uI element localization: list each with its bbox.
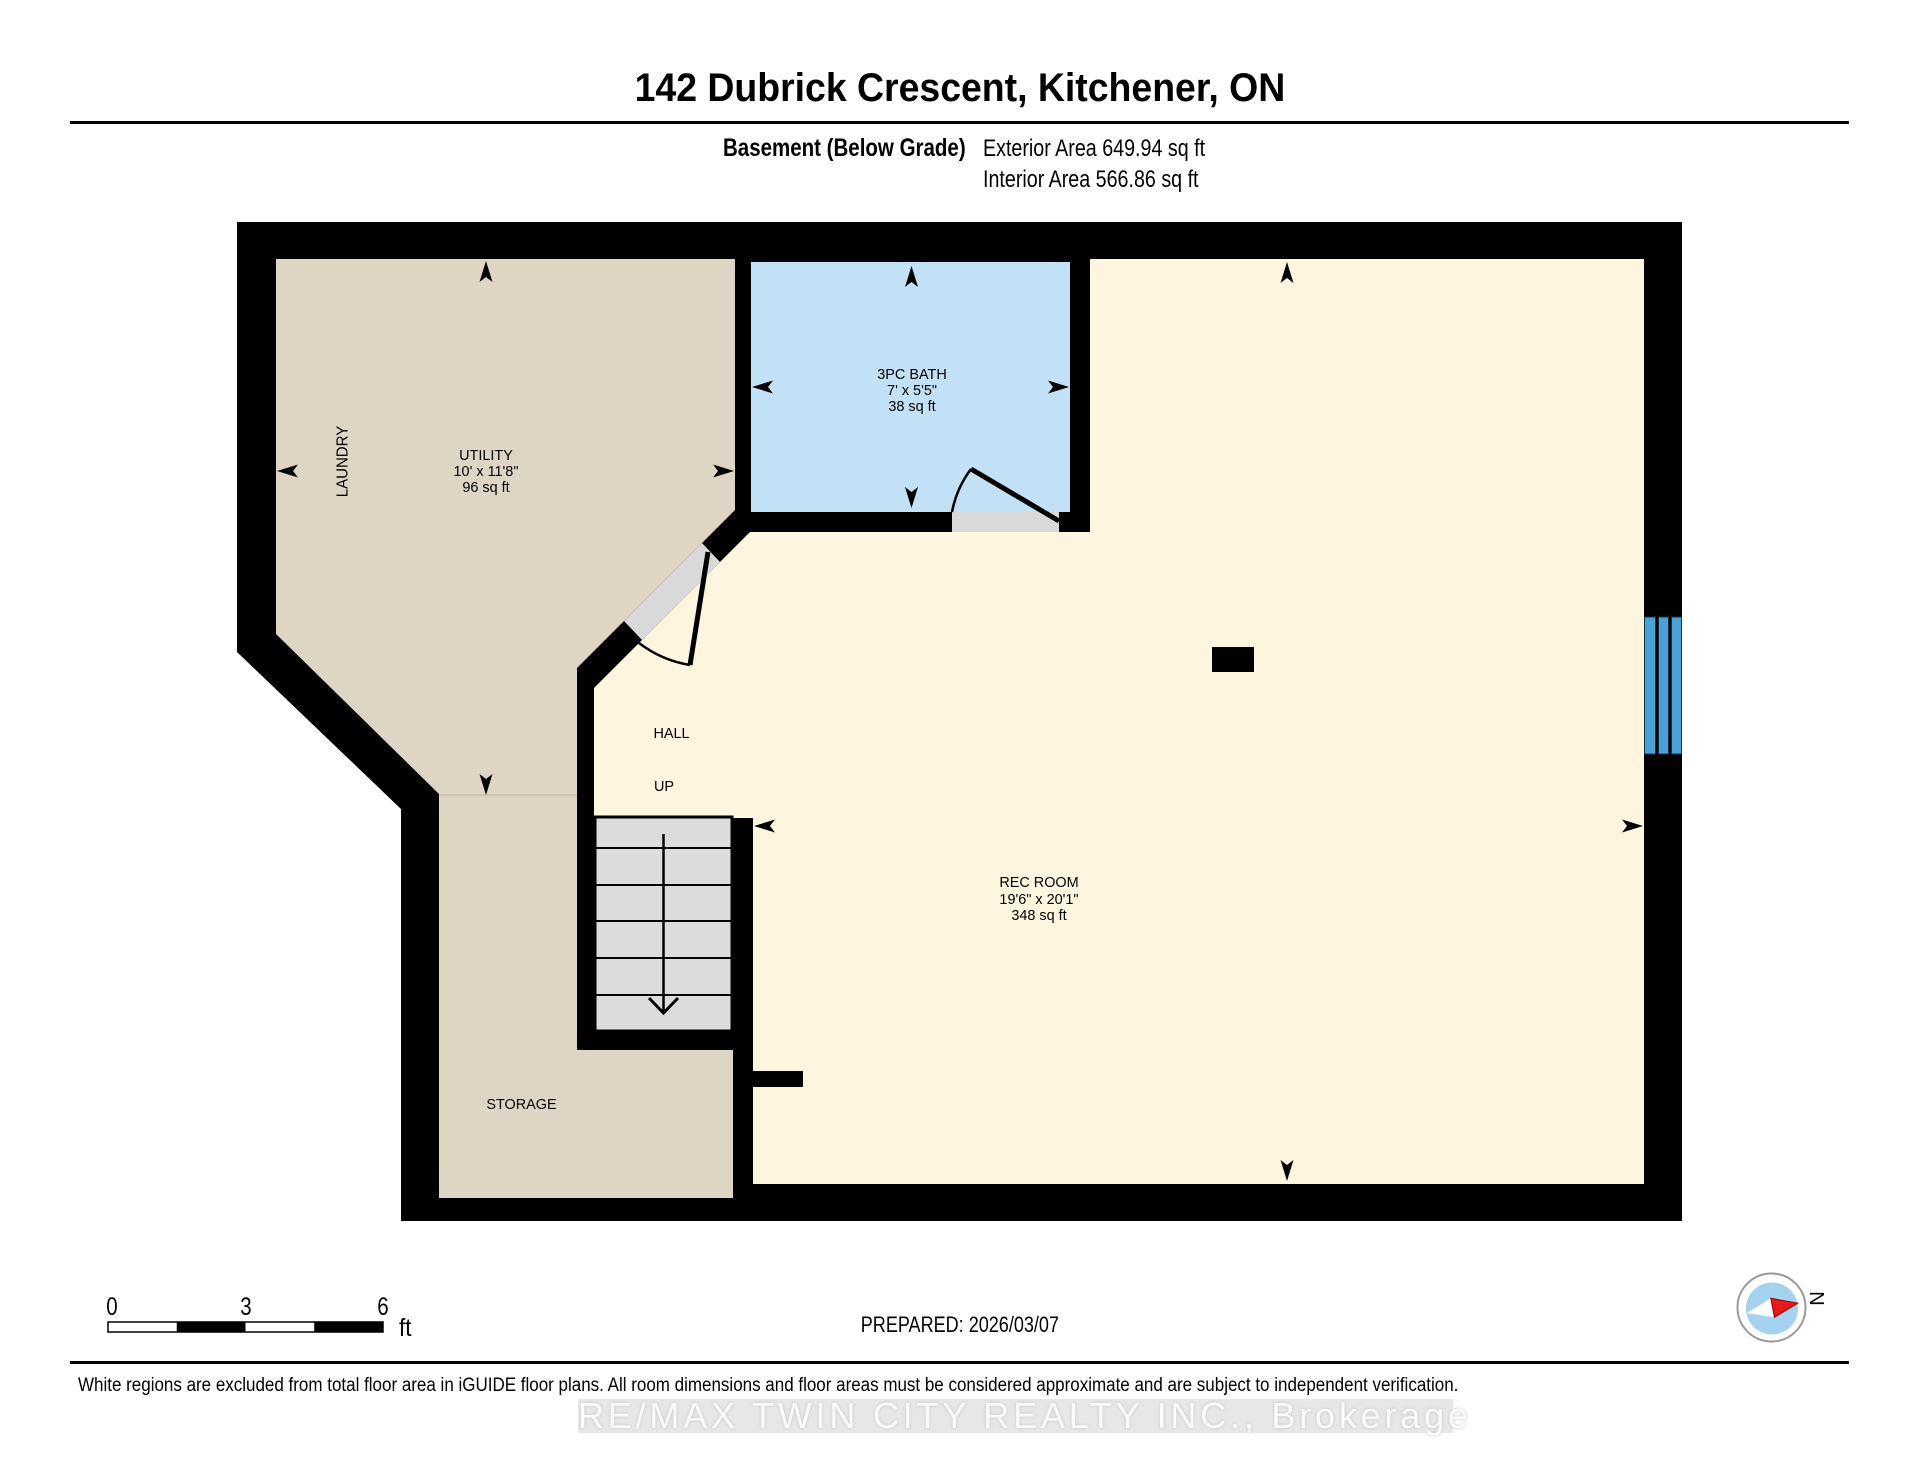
svg-text:STORAGE: STORAGE [486, 1097, 556, 1113]
svg-text:UTILITY: UTILITY [459, 448, 513, 464]
svg-text:HALL: HALL [653, 726, 689, 742]
svg-text:96 sq ft: 96 sq ft [462, 480, 509, 496]
svg-text:7' x 5'5": 7' x 5'5" [887, 383, 937, 399]
svg-text:REC ROOM: REC ROOM [999, 875, 1078, 891]
svg-text:348 sq ft: 348 sq ft [1011, 908, 1066, 924]
svg-text:N: N [1805, 1291, 1827, 1305]
svg-text:UP: UP [654, 779, 674, 795]
svg-text:3PC BATH: 3PC BATH [877, 367, 946, 383]
svg-text:10' x 11'8": 10' x 11'8" [454, 464, 519, 480]
svg-text:LAUNDRY: LAUNDRY [334, 425, 352, 497]
svg-text:19'6" x 20'1": 19'6" x 20'1" [999, 892, 1078, 908]
svg-text:38 sq ft: 38 sq ft [888, 399, 935, 415]
